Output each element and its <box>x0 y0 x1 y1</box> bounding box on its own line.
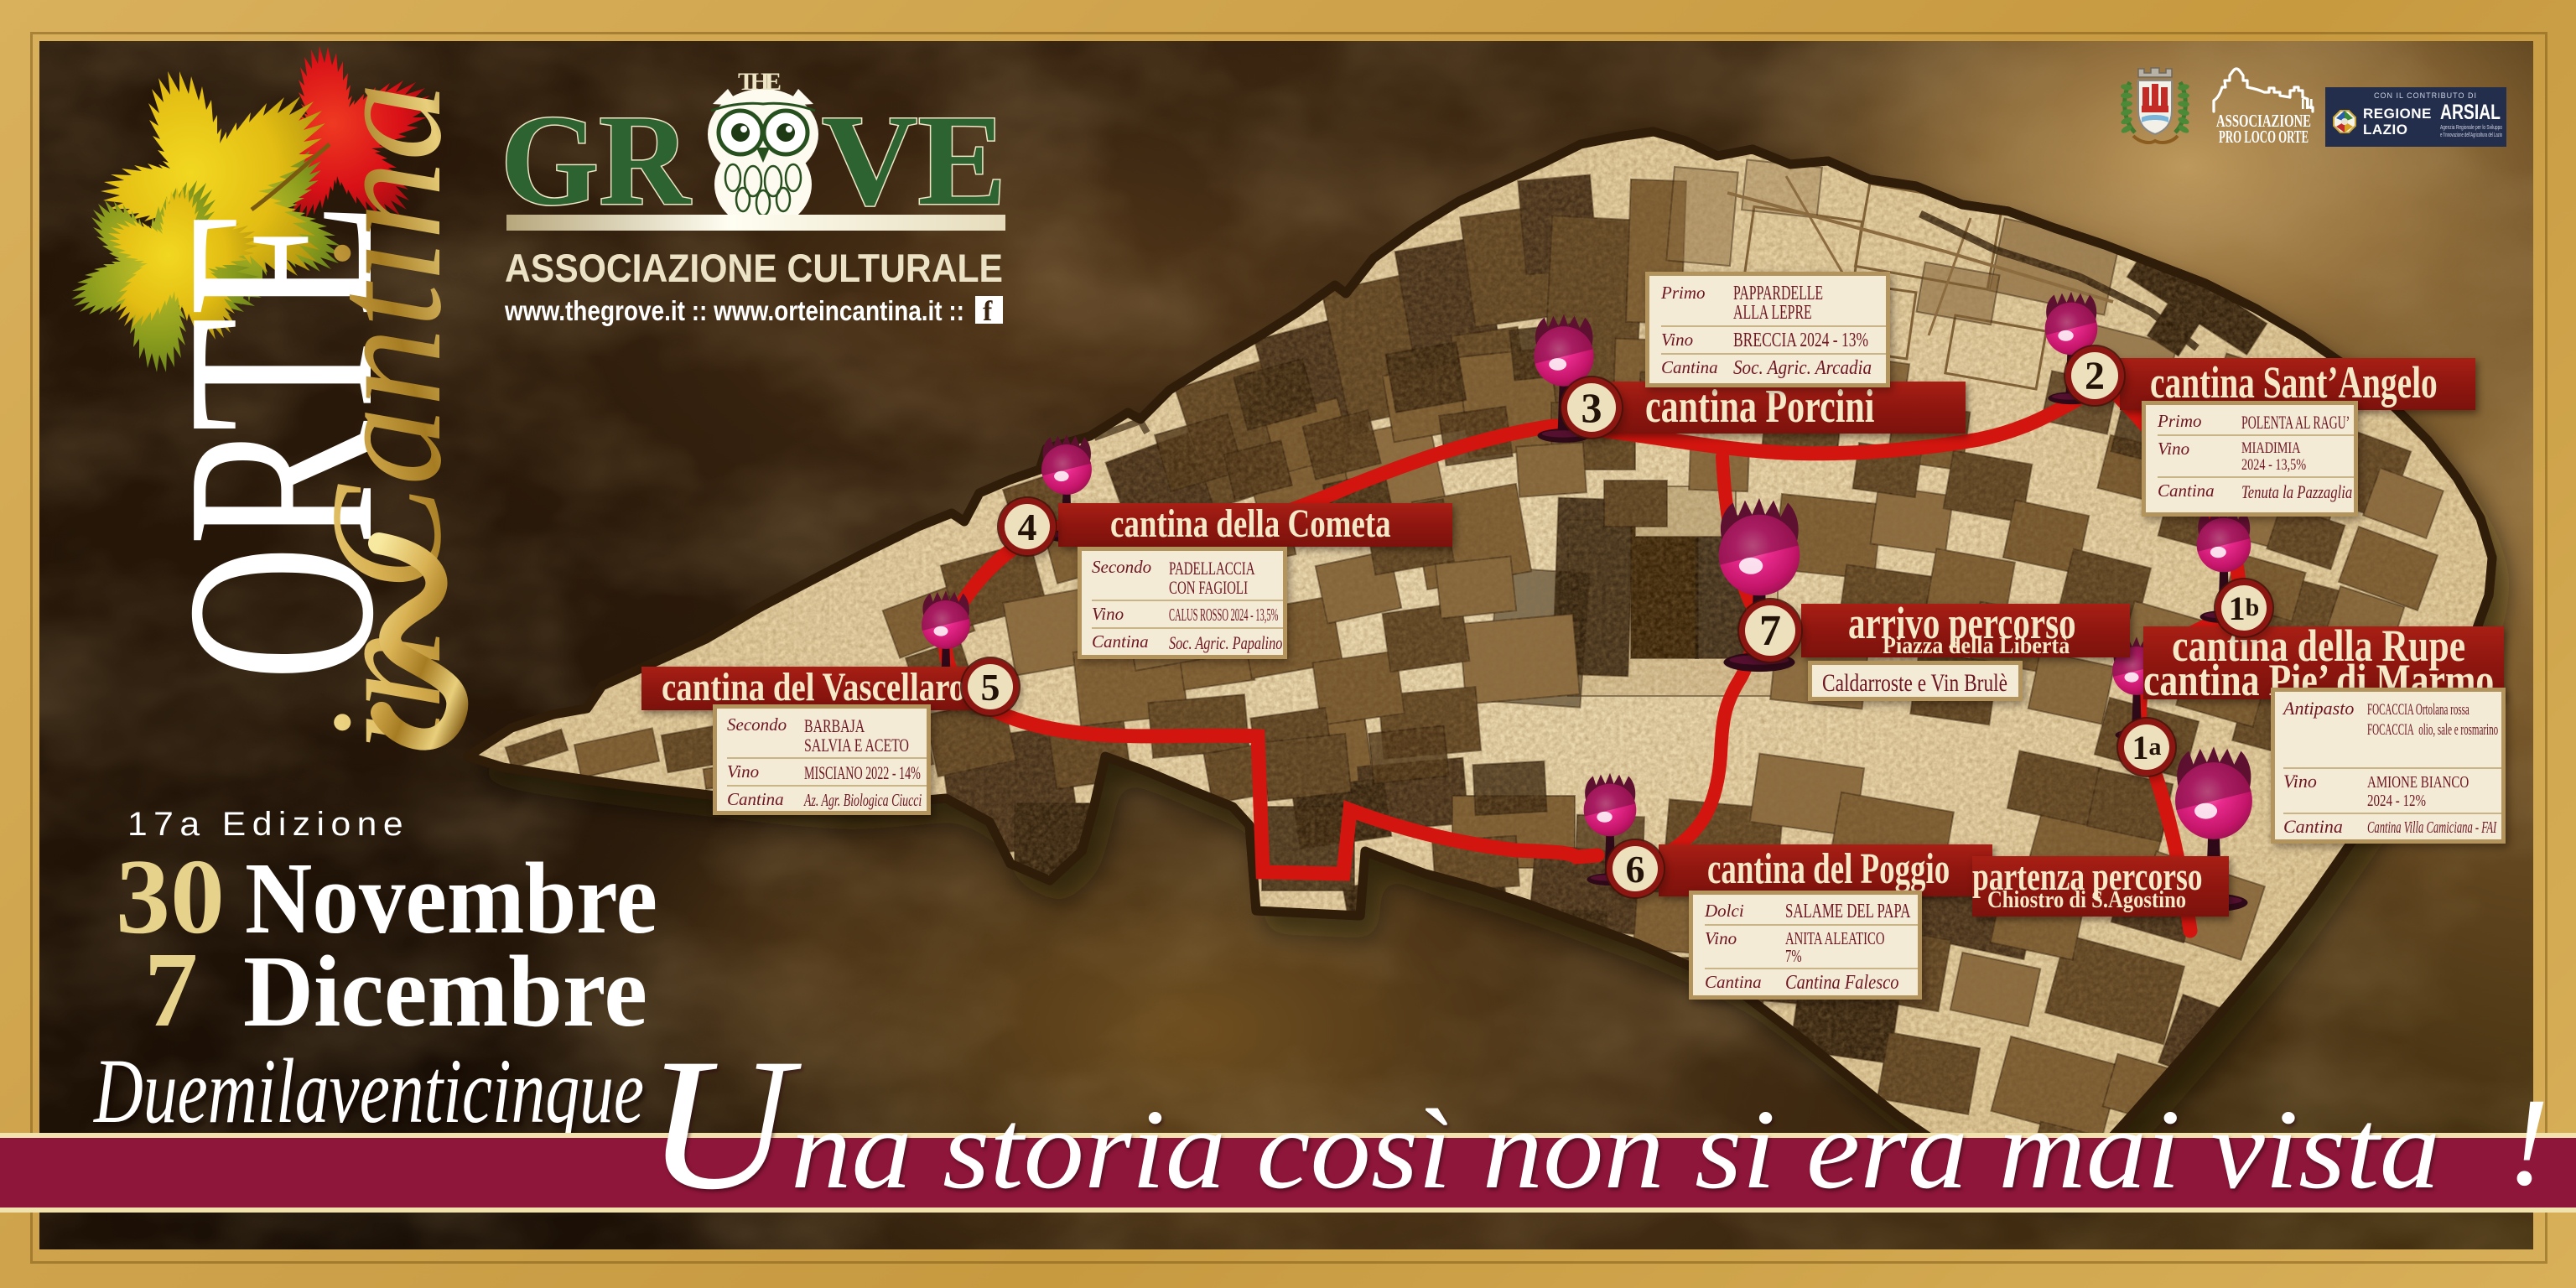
svg-text:LAZIO: LAZIO <box>2363 122 2408 138</box>
svg-text:Una storia così non si era mai: Una storia così non si era mai vista <box>646 1019 2440 1228</box>
svg-text:Agenzia Regionale per lo Svilu: Agenzia Regionale per lo Sviluppo <box>2440 123 2502 131</box>
svg-text:CON IL CONTRIBUTO DI: CON IL CONTRIBUTO DI <box>2374 91 2477 100</box>
svg-text:ARSIAL: ARSIAL <box>2440 101 2501 124</box>
svg-text:PRO LOCO ORTE: PRO LOCO ORTE <box>2219 127 2309 147</box>
svg-text:REGIONE: REGIONE <box>2363 106 2432 122</box>
svg-text:!: ! <box>2507 1072 2549 1212</box>
svg-text:e l’Innovazione dell’Agricoltu: e l’Innovazione dell’Agricoltura del Laz… <box>2440 131 2502 138</box>
